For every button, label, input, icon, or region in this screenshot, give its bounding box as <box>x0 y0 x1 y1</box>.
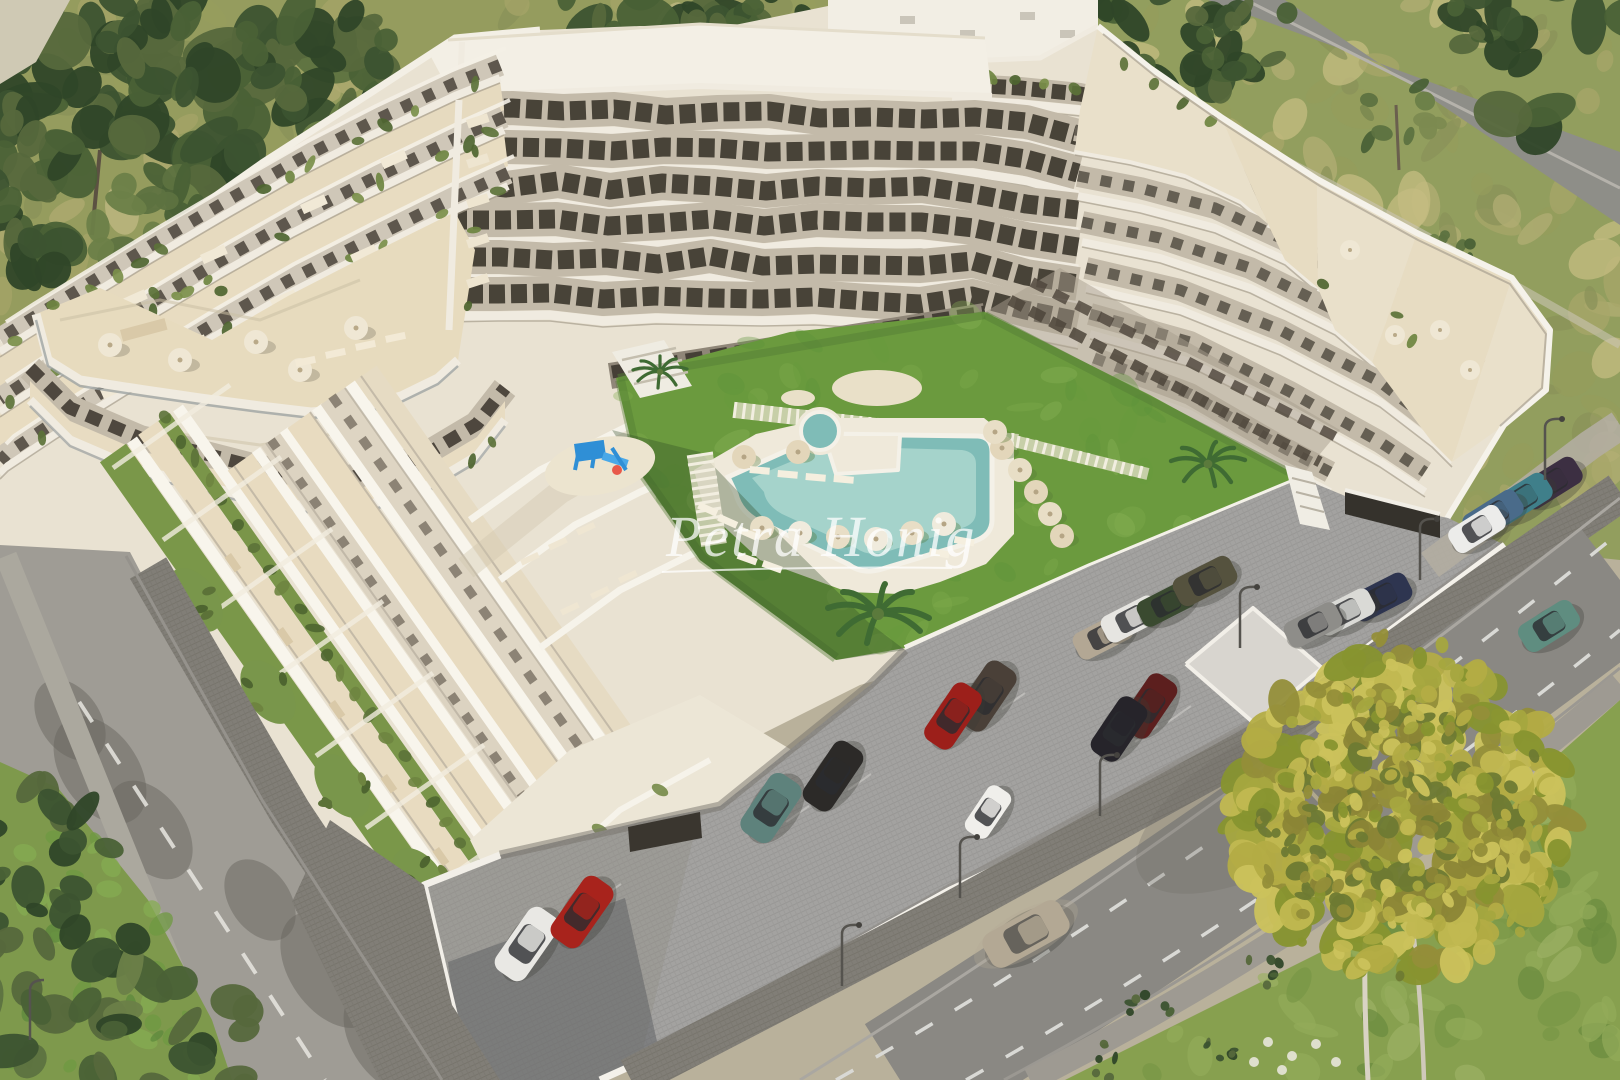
svg-text:Petra Honig: Petra Honig <box>665 504 976 569</box>
